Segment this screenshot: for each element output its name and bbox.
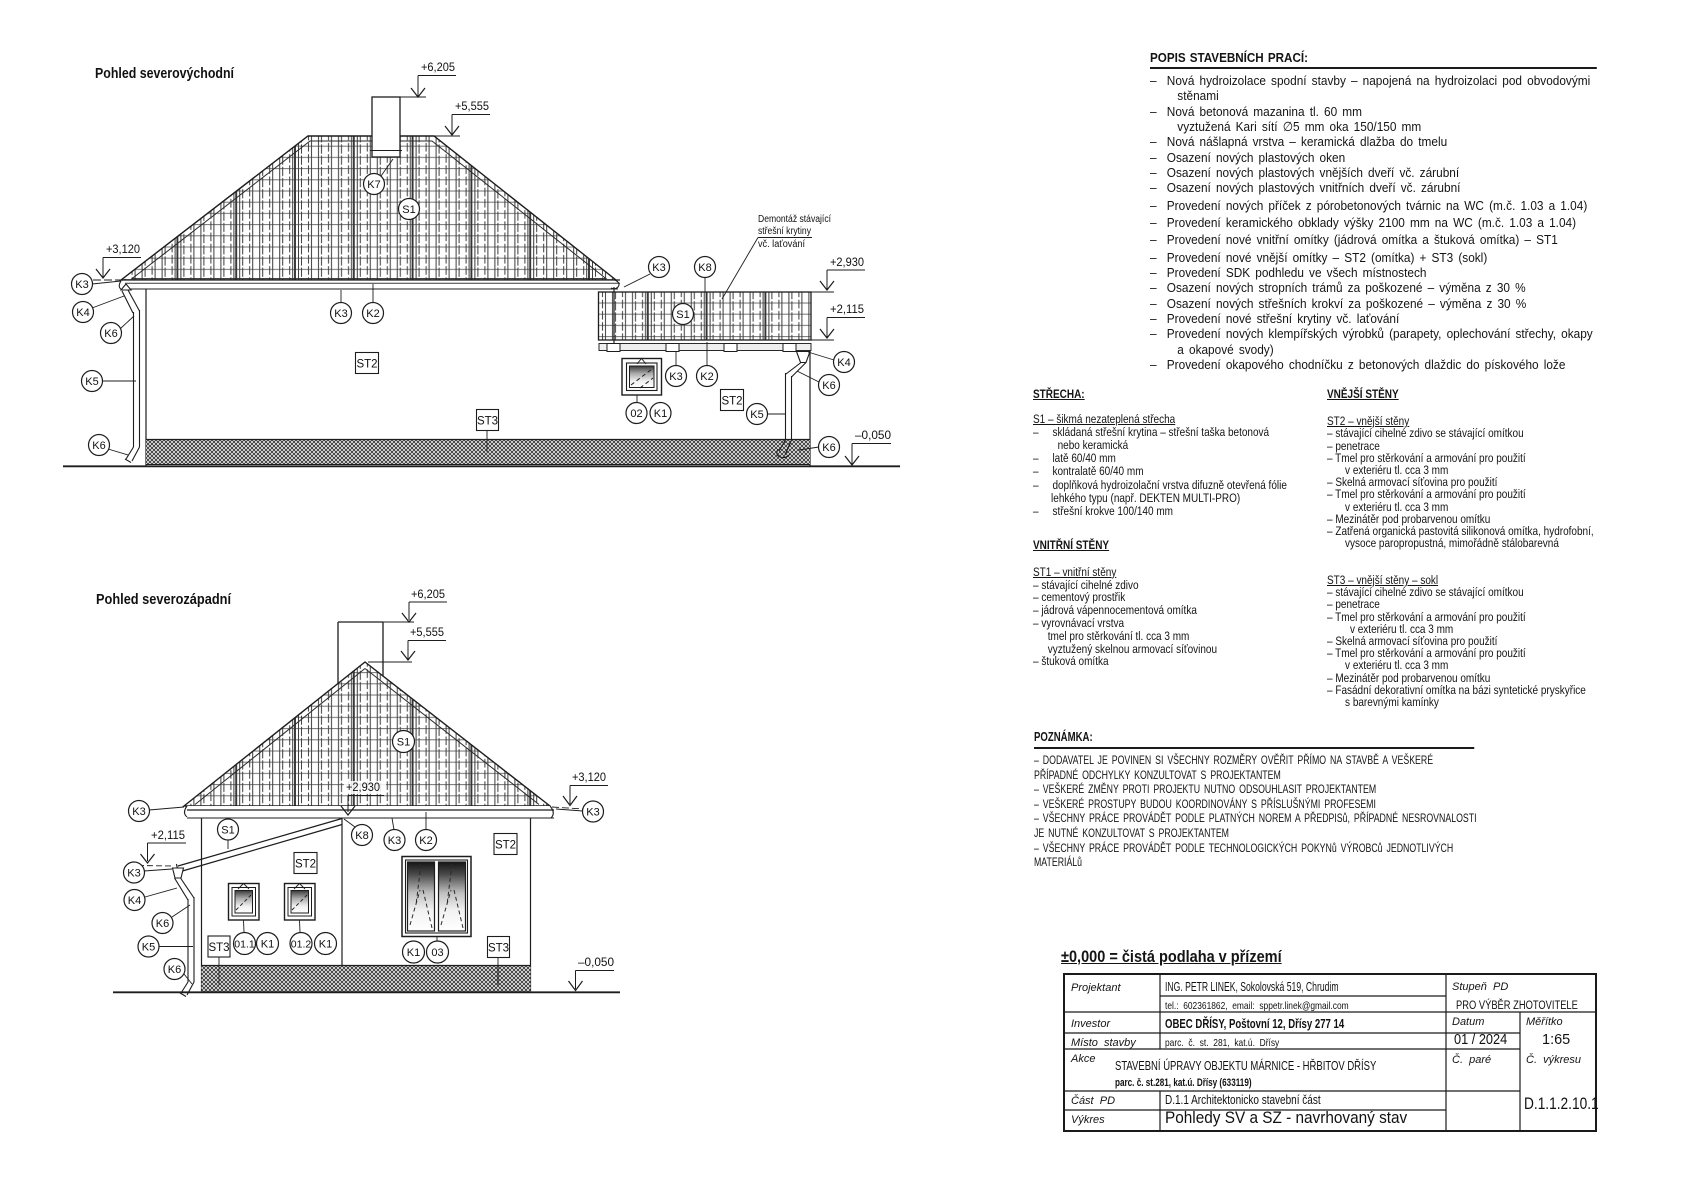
svg-text:K7: K7 — [367, 179, 380, 191]
svg-text:S1: S1 — [221, 825, 234, 837]
svg-text:K2: K2 — [700, 371, 713, 383]
svg-text:+6,205: +6,205 — [421, 62, 455, 74]
svg-text:01.1: 01.1 — [234, 939, 255, 951]
svg-text:K3: K3 — [669, 371, 682, 383]
svg-text:+3,120: +3,120 — [106, 244, 140, 256]
svg-text:ST3: ST3 — [488, 943, 509, 955]
svg-text:ST2: ST2 — [721, 396, 742, 408]
svg-text:Demontáž stávající: Demontáž stávající — [758, 214, 831, 225]
svg-text:K4: K4 — [837, 357, 850, 369]
svg-text:+5,555: +5,555 — [455, 101, 489, 113]
svg-text:K4: K4 — [128, 895, 141, 907]
svg-text:01.2: 01.2 — [291, 939, 312, 951]
svg-text:+2,115: +2,115 — [830, 304, 864, 316]
svg-text:K3: K3 — [586, 807, 599, 819]
svg-text:K2: K2 — [419, 835, 432, 847]
svg-text:+3,120: +3,120 — [572, 772, 606, 784]
svg-text:+6,205: +6,205 — [411, 589, 445, 601]
svg-text:K3: K3 — [75, 279, 88, 291]
svg-text:K3: K3 — [127, 868, 140, 880]
svg-text:S1: S1 — [397, 737, 410, 749]
svg-text:K3: K3 — [388, 835, 401, 847]
svg-text:K1: K1 — [407, 947, 420, 959]
svg-text:K5: K5 — [750, 409, 763, 421]
svg-text:K1: K1 — [319, 939, 332, 951]
svg-text:K6: K6 — [822, 380, 835, 392]
svg-text:Pohled severovýchodní: Pohled severovýchodní — [95, 66, 235, 82]
svg-text:K8: K8 — [698, 262, 711, 274]
svg-text:vč. laťování: vč. laťování — [758, 239, 805, 250]
svg-text:střešní krytiny: střešní krytiny — [758, 226, 811, 237]
svg-text:+2,930: +2,930 — [830, 257, 864, 269]
svg-text:02: 02 — [630, 408, 642, 420]
svg-text:K6: K6 — [104, 328, 117, 340]
svg-text:ST2: ST2 — [295, 859, 316, 871]
svg-text:K3: K3 — [334, 308, 347, 320]
svg-text:K8: K8 — [355, 830, 368, 842]
svg-text:ST3: ST3 — [208, 942, 229, 954]
svg-text:K6: K6 — [156, 918, 169, 930]
svg-text:Pohled severozápadní: Pohled severozápadní — [96, 592, 232, 608]
svg-text:K1: K1 — [261, 939, 274, 951]
svg-text:S1: S1 — [676, 309, 689, 321]
svg-text:03: 03 — [431, 947, 443, 959]
svg-text:K3: K3 — [132, 806, 145, 818]
svg-text:K4: K4 — [76, 307, 89, 319]
svg-text:K2: K2 — [366, 308, 379, 320]
svg-text:K1: K1 — [654, 408, 667, 420]
svg-text:–0,050: –0,050 — [578, 957, 614, 969]
svg-text:S1: S1 — [402, 204, 415, 216]
svg-text:–0,050: –0,050 — [855, 430, 891, 442]
svg-text:K6: K6 — [92, 440, 105, 452]
svg-text:K6: K6 — [822, 442, 835, 454]
svg-text:K3: K3 — [652, 262, 665, 274]
svg-text:+2,930: +2,930 — [346, 782, 380, 794]
svg-text:+5,555: +5,555 — [410, 627, 444, 639]
svg-text:ST3: ST3 — [477, 416, 498, 428]
svg-text:K6: K6 — [168, 964, 181, 976]
svg-text:ST2: ST2 — [356, 359, 377, 371]
svg-text:K5: K5 — [85, 376, 98, 388]
svg-text:ST2: ST2 — [495, 840, 516, 852]
svg-text:+2,115: +2,115 — [151, 830, 185, 842]
svg-text:K5: K5 — [142, 942, 155, 954]
